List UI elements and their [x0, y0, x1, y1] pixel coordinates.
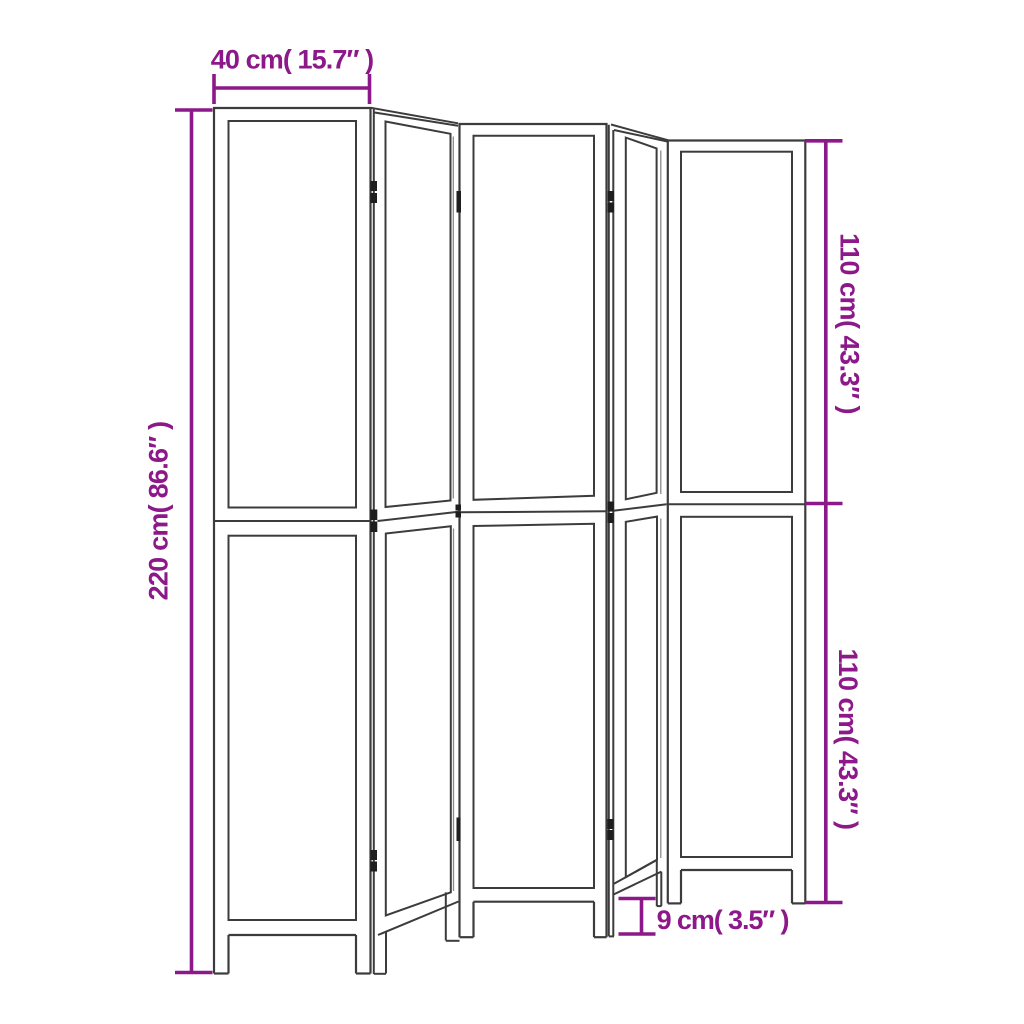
svg-text:220 cm( 86.6″ ): 220 cm( 86.6″ ) [144, 422, 174, 601]
svg-text:9 cm( 3.5″ ): 9 cm( 3.5″ ) [657, 905, 789, 935]
svg-text:110 cm( 43.3″ ): 110 cm( 43.3″ ) [835, 233, 865, 414]
svg-text:110 cm( 43.3″ ): 110 cm( 43.3″ ) [833, 648, 863, 829]
svg-text:40 cm( 15.7″ ): 40 cm( 15.7″ ) [211, 45, 373, 75]
